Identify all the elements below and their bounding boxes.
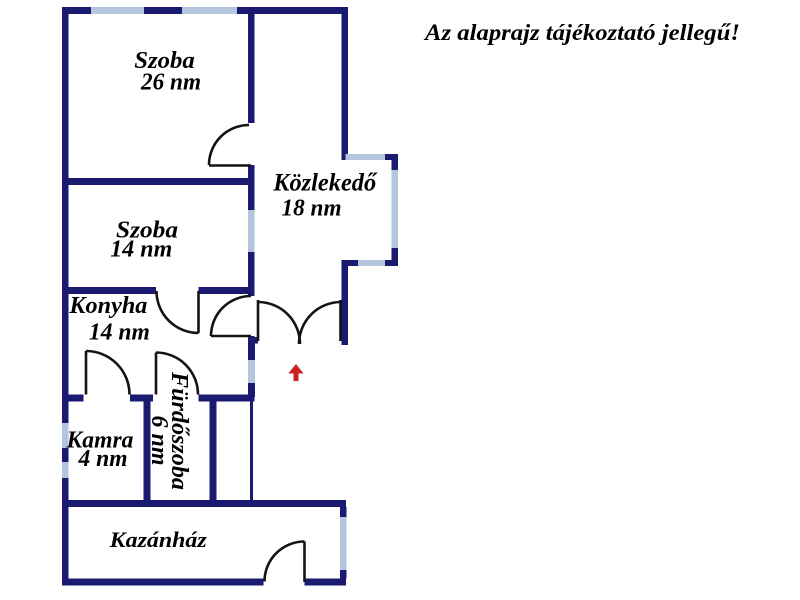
svg-text:Konyha: Konyha [68,293,147,319]
svg-text:4 nm: 4 nm [78,446,128,472]
svg-text:Az alaprajz tájékoztató jelleg: Az alaprajz tájékoztató jellegű! [423,20,740,45]
svg-text:26 nm: 26 nm [140,70,201,96]
svg-text:14 nm: 14 nm [110,236,172,262]
svg-text:6 nm: 6 nm [146,416,172,466]
svg-text:18 nm: 18 nm [282,196,342,222]
svg-text:14 nm: 14 nm [89,320,150,346]
svg-text:Közlekedő: Közlekedő [272,170,377,197]
svg-text:Kazánház: Kazánház [109,527,207,552]
